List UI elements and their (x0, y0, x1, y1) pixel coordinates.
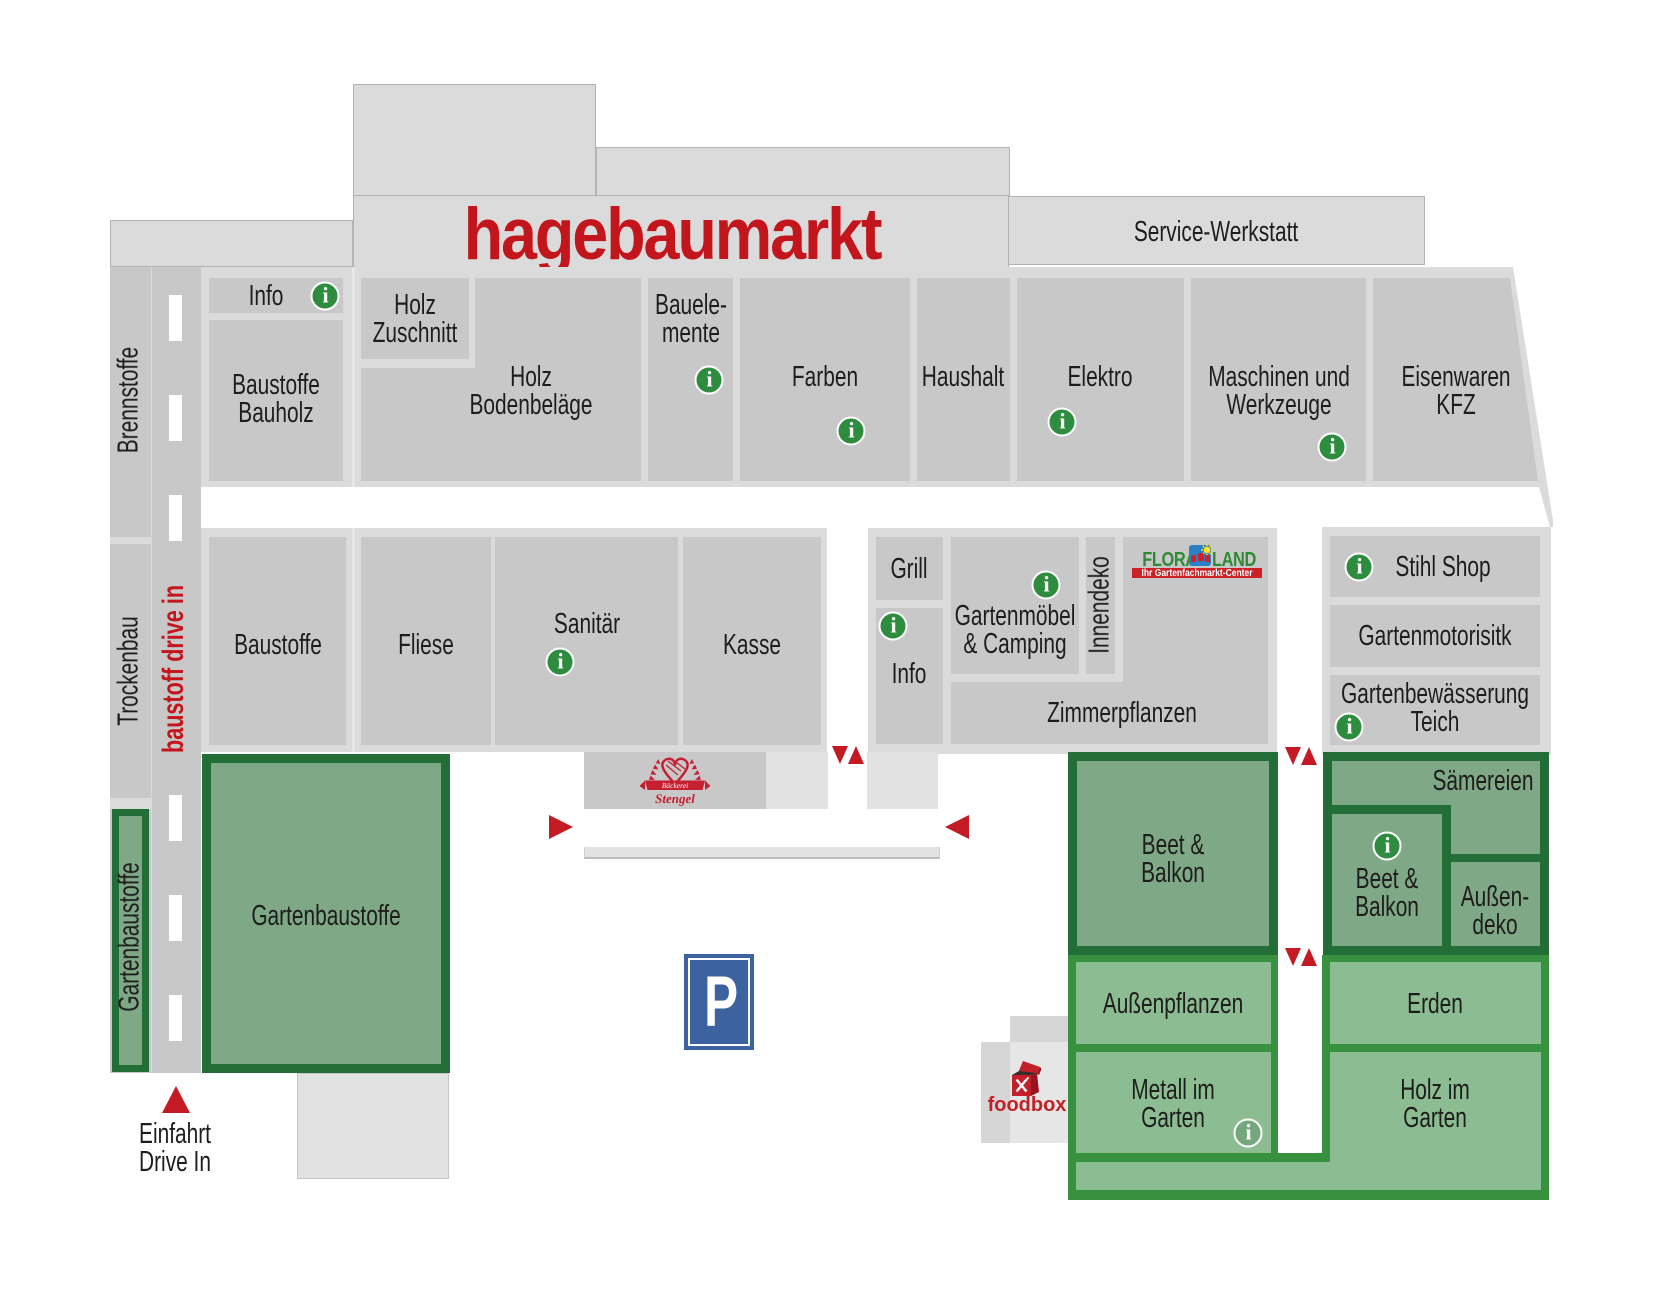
svg-text:Stengel: Stengel (655, 791, 695, 806)
svg-text:Bäckerei: Bäckerei (662, 781, 688, 790)
